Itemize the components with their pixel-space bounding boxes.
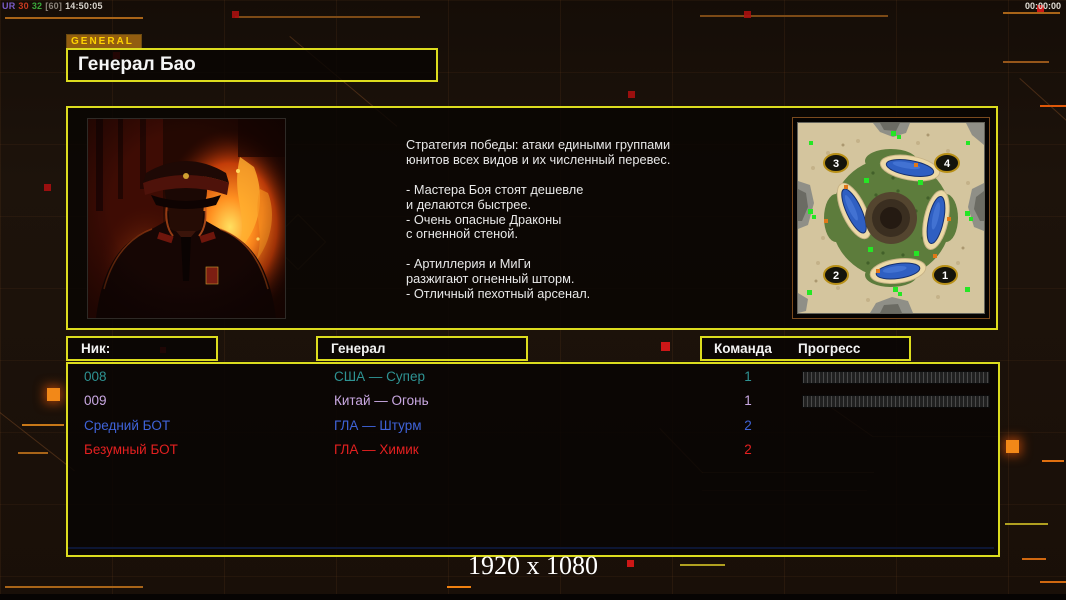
player-general: США — Супер <box>334 369 614 384</box>
header-team: Команда <box>714 338 772 359</box>
gentool-stats: UR3032[60]14:50:05 <box>2 1 106 11</box>
player-team: 1 <box>724 393 772 408</box>
stat-segment: 14:50:05 <box>65 1 103 11</box>
player-general: ГЛА — Штурм <box>334 418 614 433</box>
player-progress-bar <box>802 371 990 384</box>
deco-square-orange <box>47 388 60 401</box>
player-general: ГЛА — Химик <box>334 442 614 457</box>
map-start-3: 3 <box>833 158 839 170</box>
player-list-panel: 008 США — Супер 1 009 Китай — Огонь 1 Ср… <box>66 362 1000 557</box>
deco-line <box>1042 460 1064 462</box>
deco-line <box>5 586 143 588</box>
map-image: 3 4 2 1 <box>797 122 985 314</box>
player-rows: 008 США — Супер 1 009 Китай — Огонь 1 Ср… <box>68 364 998 555</box>
player-nick: 008 <box>84 369 314 384</box>
deco-line <box>5 17 143 19</box>
player-nick: Средний БОТ <box>84 418 314 433</box>
stat-segment: UR <box>2 1 15 11</box>
resolution-label: 1920 x 1080 <box>0 551 1066 581</box>
player-nick: 009 <box>84 393 314 408</box>
stat-segment: 30 <box>18 1 28 11</box>
header-general-box: Генерал <box>316 336 528 361</box>
deco-line <box>235 16 420 18</box>
deco-line <box>18 452 48 454</box>
general-tab-label: GENERAL <box>66 34 142 49</box>
deco-line <box>447 586 471 588</box>
deco-line <box>1005 523 1048 525</box>
player-general: Китай — Огонь <box>334 393 614 408</box>
deco-line <box>1040 105 1066 107</box>
player-progress-bar <box>802 395 990 408</box>
general-portrait <box>88 119 285 318</box>
deco-line <box>22 424 64 426</box>
general-name: Генерал Бао <box>68 54 196 76</box>
table-row[interactable]: Средний БОТ ГЛА — Штурм 2 <box>68 415 998 439</box>
game-lobby-screen: UR3032[60]14:50:05 00:00:00 GENERAL Гене… <box>0 0 1066 600</box>
deco-square-red <box>744 11 751 18</box>
stat-segment: 32 <box>32 1 42 11</box>
deco-square-red <box>44 184 51 191</box>
stat-segment: [60] <box>45 1 62 11</box>
header-progress: Прогресс <box>798 338 860 359</box>
deco-square-red <box>628 91 635 98</box>
deco-square-red <box>232 11 239 18</box>
deco-square-red <box>661 342 670 351</box>
map-start-4: 4 <box>944 158 951 170</box>
map-start-2: 2 <box>833 270 839 282</box>
strategy-text: Стратегия победы: атаки едиными группами… <box>406 138 736 302</box>
general-name-box: Генерал Бао <box>66 48 438 82</box>
deco-line <box>1040 581 1066 583</box>
deco-line <box>700 15 888 17</box>
player-nick: Безумный БОТ <box>84 442 314 457</box>
match-timer: 00:00:00 <box>1025 1 1061 11</box>
deco-square-orange <box>1006 440 1019 453</box>
player-team: 2 <box>724 418 772 433</box>
general-info-panel: Стратегия победы: атаки едиными группами… <box>66 106 998 330</box>
header-nick-box: Ник: <box>66 336 218 361</box>
header-general: Генерал <box>318 338 526 359</box>
deco-line <box>1003 61 1049 63</box>
player-team: 1 <box>724 369 772 384</box>
header-nick: Ник: <box>68 338 216 359</box>
table-row[interactable]: Безумный БОТ ГЛА — Химик 2 <box>68 439 998 463</box>
map-start-1: 1 <box>942 270 948 282</box>
table-row[interactable]: 008 США — Супер 1 <box>68 366 998 390</box>
header-team-progress-box: Команда Прогресс <box>700 336 911 361</box>
player-team: 2 <box>724 442 772 457</box>
table-row[interactable]: 009 Китай — Огонь 1 <box>68 390 998 414</box>
bottom-strip <box>0 594 1066 600</box>
deco-line <box>1003 12 1060 14</box>
map-preview: 3 4 2 1 <box>792 117 990 319</box>
deco-navy-line <box>68 547 994 549</box>
